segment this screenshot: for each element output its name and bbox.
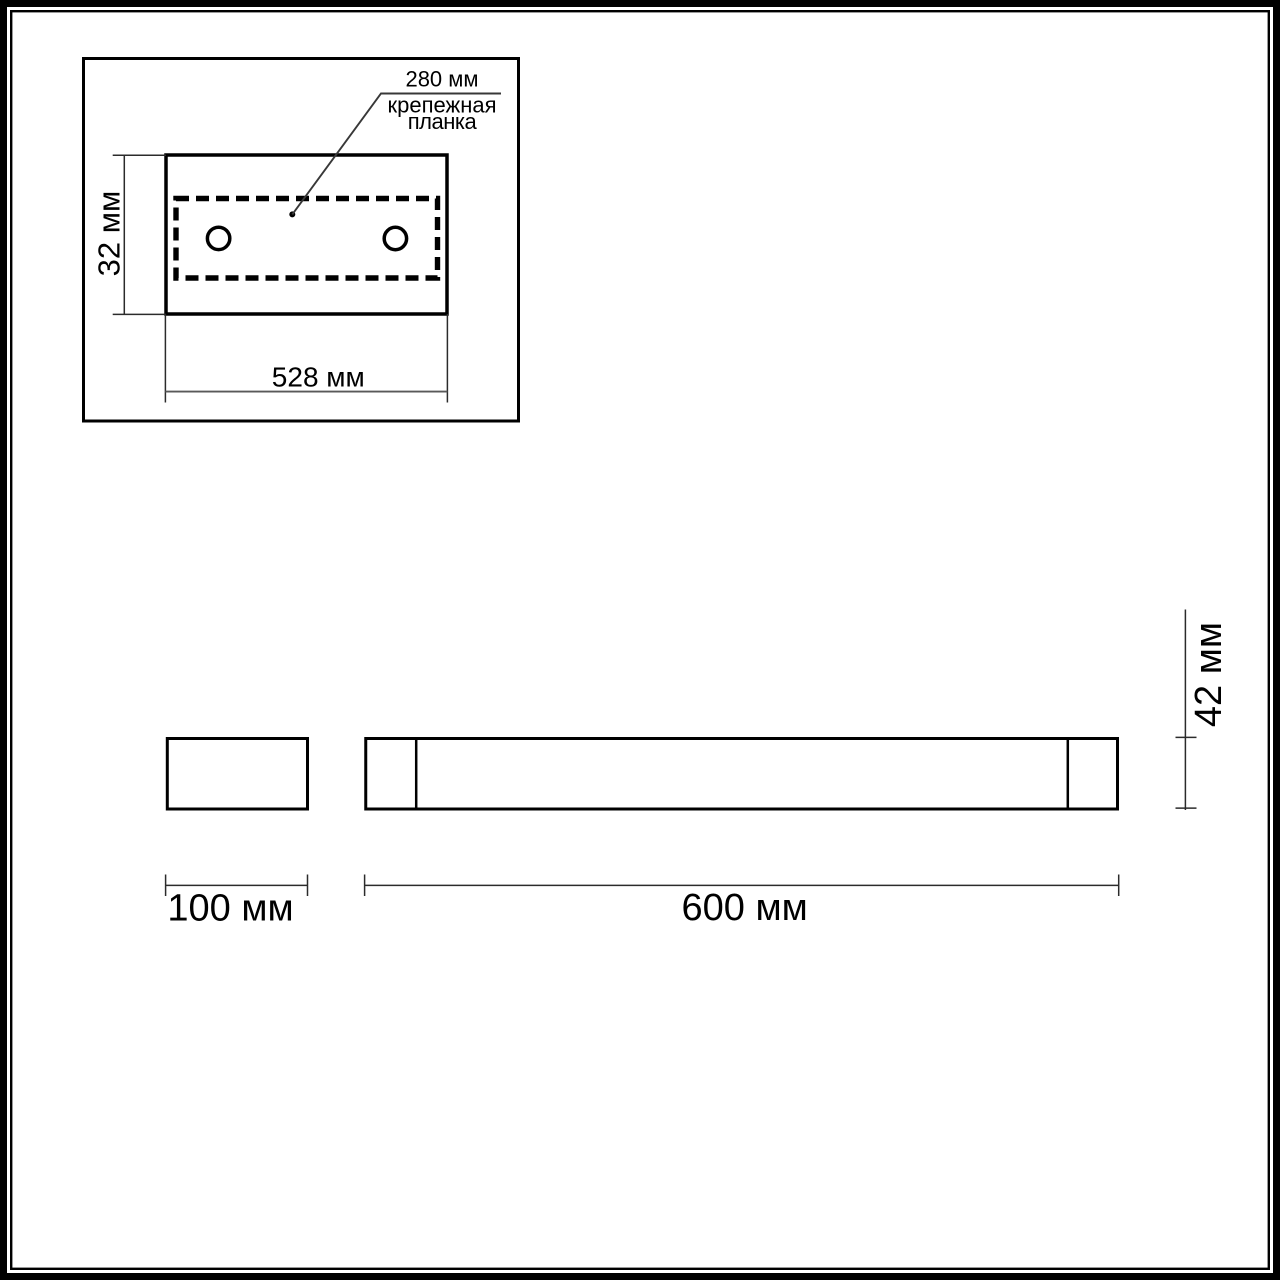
svg-text:528 мм: 528 мм xyxy=(272,361,365,392)
svg-text:42 мм: 42 мм xyxy=(1188,622,1230,727)
svg-text:600 мм: 600 мм xyxy=(681,887,807,929)
svg-text:280 мм: 280 мм xyxy=(405,66,478,91)
svg-text:32 мм: 32 мм xyxy=(92,191,127,277)
svg-text:100 мм: 100 мм xyxy=(167,888,293,930)
svg-text:планка: планка xyxy=(408,109,478,134)
